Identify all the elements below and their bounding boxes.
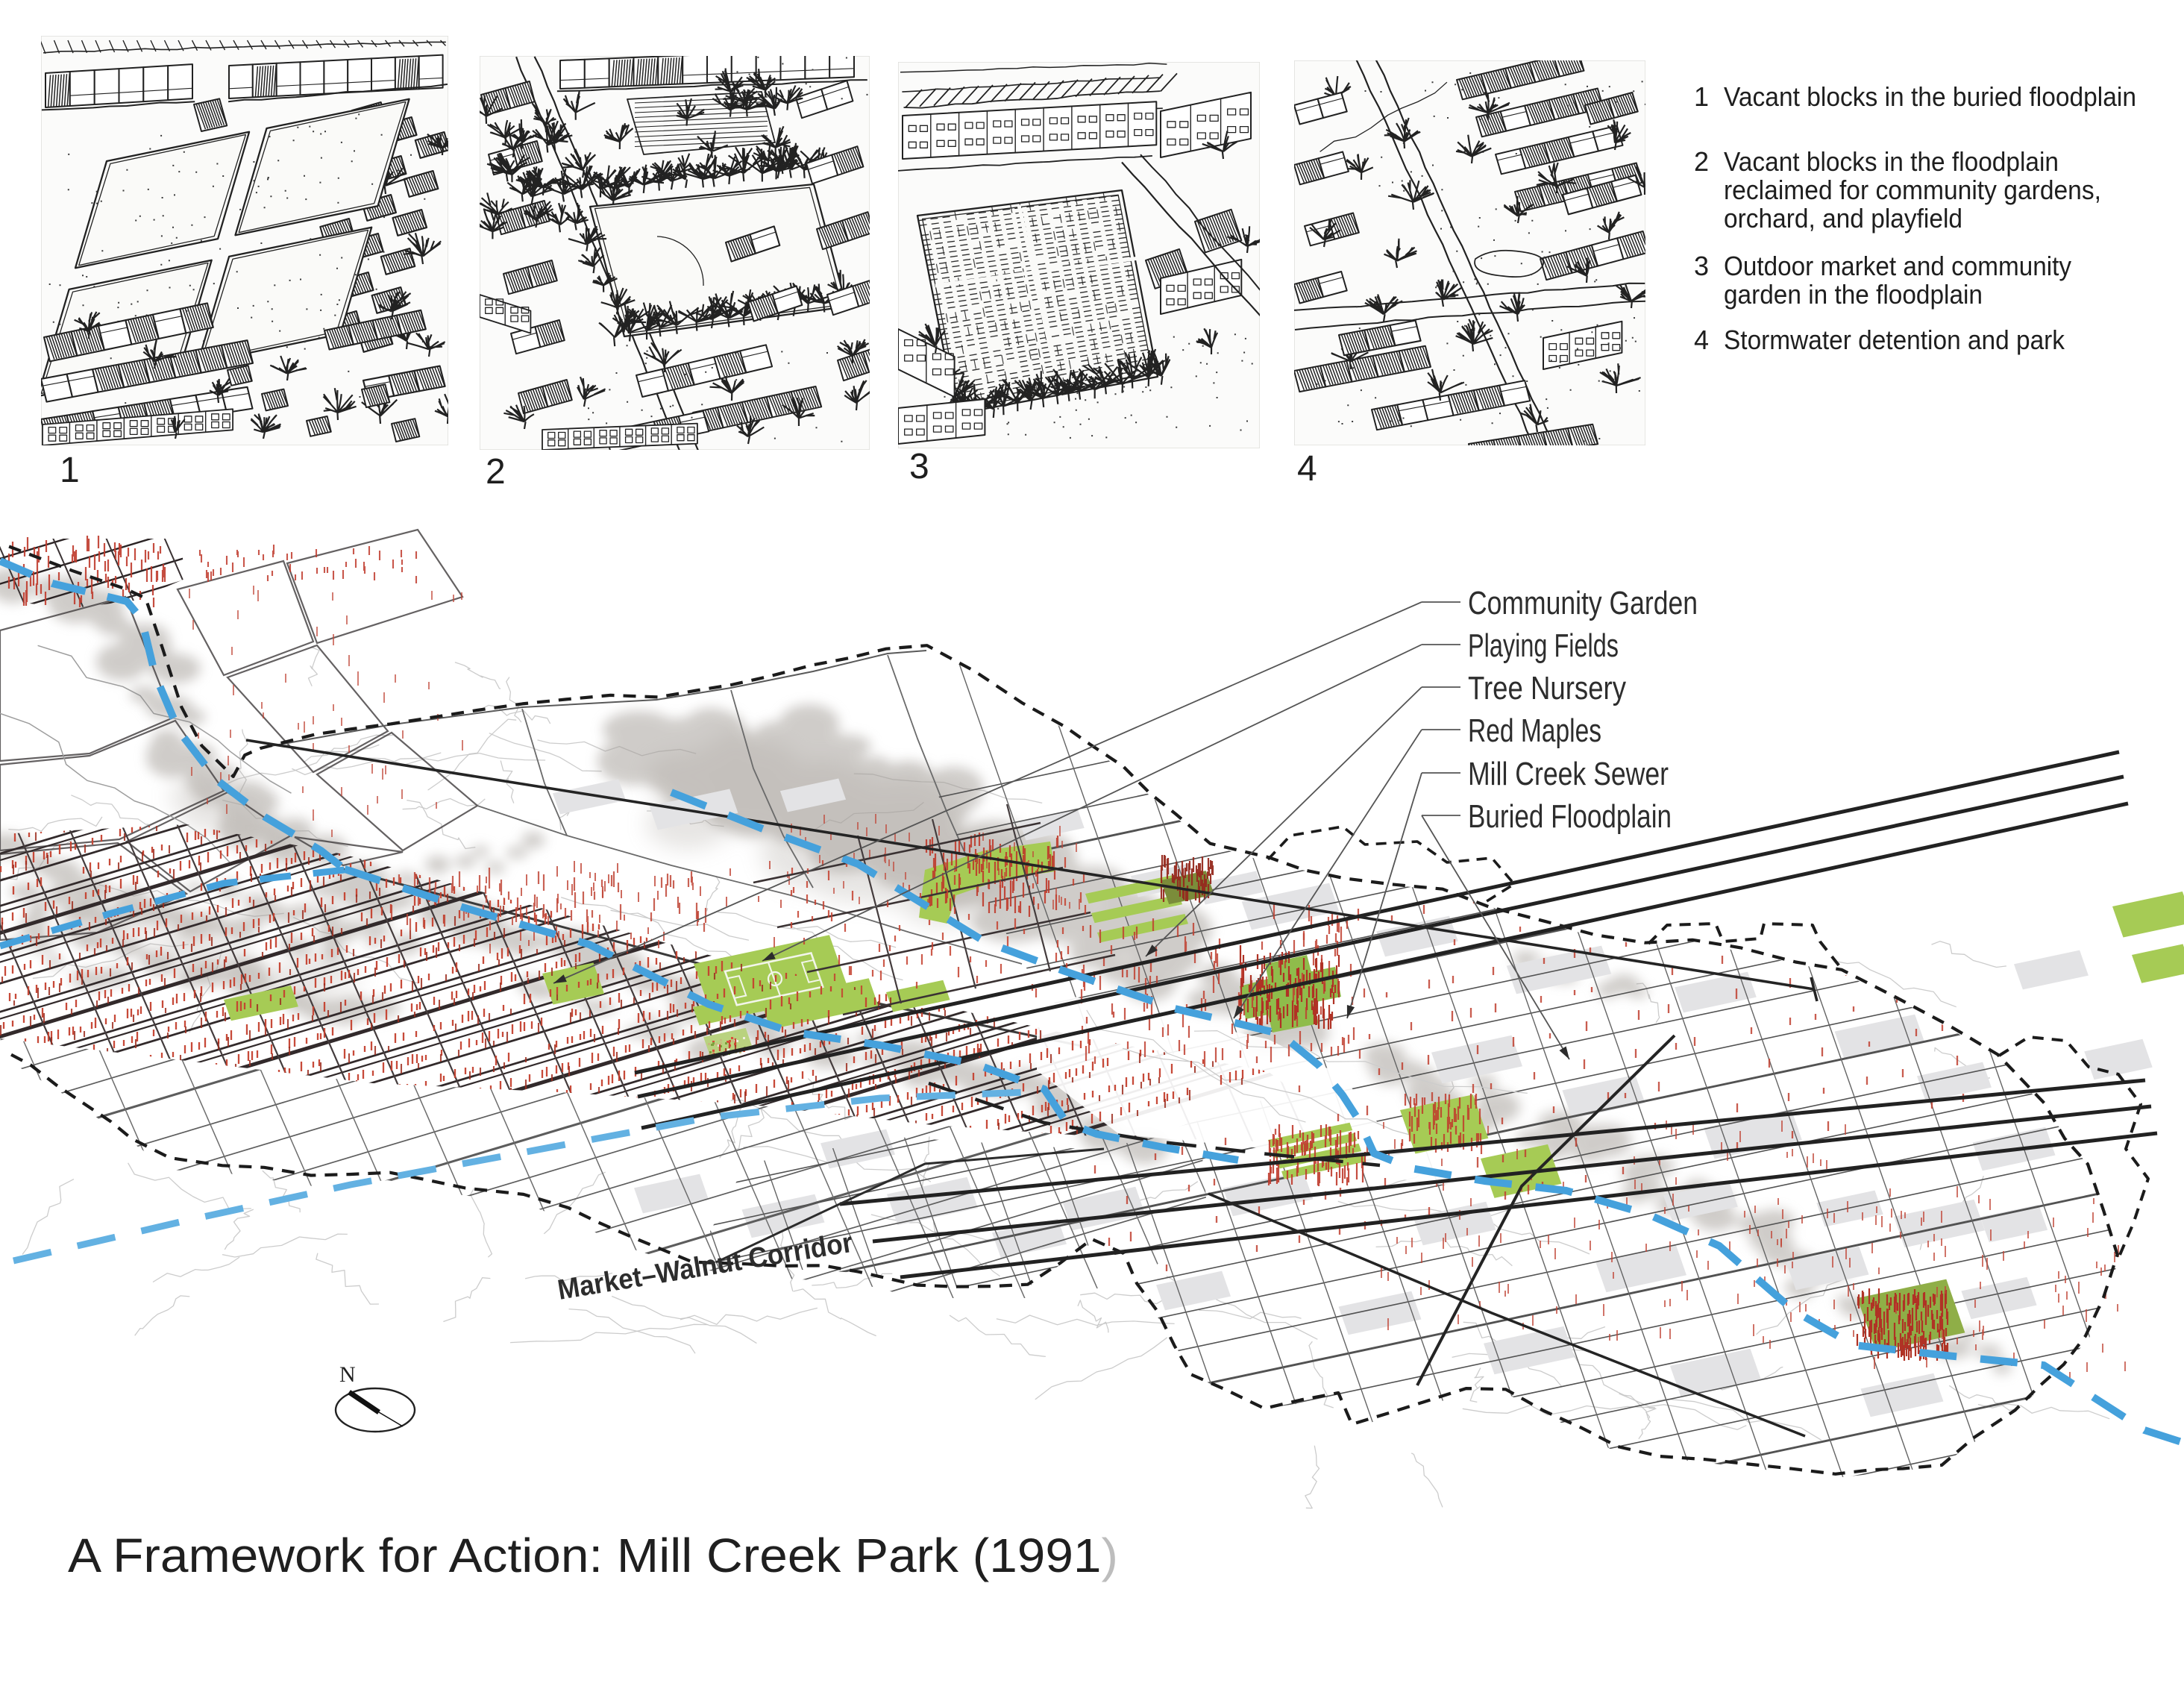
svg-text:A Framework for Action: Mill C: A Framework for Action: Mill Creek Park … [68, 1529, 1118, 1582]
svg-text:3: 3 [909, 447, 929, 486]
svg-text:Buried Floodplain: Buried Floodplain [1468, 798, 1672, 835]
svg-text:Community Garden: Community Garden [1468, 585, 1698, 621]
svg-text:1: 1 [1694, 81, 1709, 112]
svg-text:Mill Creek Sewer: Mill Creek Sewer [1468, 756, 1669, 792]
svg-text:2: 2 [1694, 146, 1709, 177]
svg-text:4: 4 [1297, 449, 1317, 489]
svg-text:garden in the floodplain: garden in the floodplain [1724, 279, 1983, 310]
svg-text:4: 4 [1694, 325, 1709, 355]
svg-text:Tree Nursery: Tree Nursery [1468, 670, 1626, 706]
svg-text:Playing Fields: Playing Fields [1468, 627, 1619, 664]
svg-text:Outdoor market and community: Outdoor market and community [1724, 251, 2071, 281]
svg-text:orchard, and playfield: orchard, and playfield [1724, 203, 1962, 234]
svg-text:N: N [339, 1362, 356, 1387]
svg-text:Vacant blocks in the floodplai: Vacant blocks in the floodplain [1724, 146, 2059, 177]
svg-text:2: 2 [486, 452, 506, 492]
svg-text:Stormwater detention and park: Stormwater detention and park [1724, 325, 2065, 355]
svg-text:Vacant blocks in the buried fl: Vacant blocks in the buried floodplain [1724, 81, 2136, 112]
svg-text:Red Maples: Red Maples [1468, 712, 1601, 749]
svg-text:3: 3 [1694, 251, 1709, 281]
svg-text:1: 1 [60, 451, 80, 490]
svg-text:reclaimed for community garden: reclaimed for community gardens, [1724, 175, 2101, 205]
